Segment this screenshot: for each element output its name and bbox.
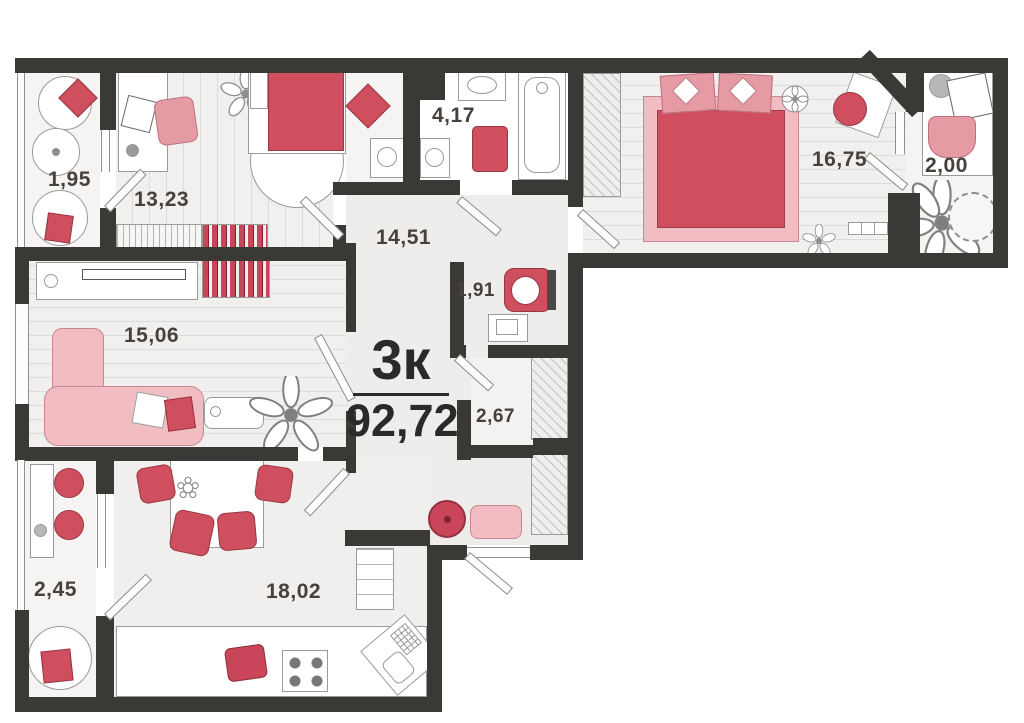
door-entrance xyxy=(464,552,513,595)
wall xyxy=(15,447,298,461)
toilet-bowl xyxy=(511,276,540,305)
wall xyxy=(512,180,568,195)
washer-drum xyxy=(425,148,444,167)
wall xyxy=(100,58,116,130)
unit-type-label: 3к xyxy=(346,332,456,388)
balcony-top-right-area-label: 2,00 xyxy=(925,154,968,178)
chair-cushion xyxy=(44,212,74,243)
bedroom-master-area-label: 16,75 xyxy=(812,148,867,172)
kitchen-area-label: 18,02 xyxy=(266,580,321,604)
wall xyxy=(457,445,533,458)
floor-plan: 1,95 13,23 4,17 14,51 16,75 2,00 1,91 15… xyxy=(0,0,1024,723)
toaster xyxy=(224,643,268,682)
unit-title: 3к 92,72 xyxy=(346,332,456,443)
desk-lamp-icon xyxy=(126,144,139,157)
bar-counter xyxy=(30,464,54,558)
bush-plant-icon xyxy=(948,192,998,242)
wall xyxy=(345,530,430,546)
plant-icon xyxy=(248,376,334,454)
sink-basin xyxy=(467,76,497,94)
wall xyxy=(533,438,568,455)
sofa-pillow xyxy=(131,391,168,428)
closet-floor xyxy=(471,358,533,445)
wc-area-label: 1,91 xyxy=(456,280,495,302)
window xyxy=(17,73,25,247)
wall xyxy=(442,545,467,560)
window xyxy=(15,304,29,404)
wall xyxy=(568,253,1008,268)
balcony-bottom-left-area-label: 2,45 xyxy=(34,578,77,602)
chair-cushion xyxy=(40,649,73,684)
wall xyxy=(568,58,583,207)
table-dot xyxy=(52,148,60,156)
shoe-bench xyxy=(470,505,522,539)
double-bed-mattress xyxy=(657,110,785,228)
window xyxy=(17,460,25,610)
ceiling-fan-icon xyxy=(780,84,810,114)
wall xyxy=(488,345,568,358)
speaker xyxy=(44,274,58,288)
bar-stool xyxy=(54,510,84,540)
wardrobe xyxy=(583,73,621,197)
bathtub-drain xyxy=(536,82,548,94)
wardrobe xyxy=(531,350,568,440)
bar-stool xyxy=(54,468,84,498)
dining-chair xyxy=(168,508,216,557)
pouf-button xyxy=(444,516,451,523)
entrance-threshold xyxy=(467,547,530,558)
desk-chair xyxy=(153,95,199,146)
wall xyxy=(96,616,114,712)
bathroom-area-label: 4,17 xyxy=(432,104,475,128)
wall xyxy=(100,208,116,247)
small-stool xyxy=(34,524,47,537)
dining-chair xyxy=(135,463,177,505)
bedroom-chair xyxy=(833,92,867,126)
bed-blanket xyxy=(268,71,344,151)
wall xyxy=(403,58,420,195)
wall xyxy=(15,247,333,261)
bath-mat xyxy=(472,126,508,172)
sink-bowl xyxy=(380,649,416,686)
book-rack xyxy=(202,260,270,298)
wardrobe xyxy=(531,453,568,535)
wc-sink-basin xyxy=(496,319,518,335)
wall xyxy=(993,58,1008,268)
fridge xyxy=(356,548,394,610)
closet-area-label: 2,67 xyxy=(476,406,515,428)
dining-chair xyxy=(216,510,257,551)
window xyxy=(97,494,106,568)
wall xyxy=(403,180,460,195)
flower-decor-icon xyxy=(176,476,200,500)
wall xyxy=(568,253,583,560)
wall xyxy=(888,193,920,268)
living-room-area-label: 15,06 xyxy=(124,324,179,348)
wall xyxy=(346,243,356,332)
sofa-cushion xyxy=(164,396,196,432)
stove xyxy=(282,650,328,692)
hallway-area-label: 14,51 xyxy=(376,226,431,250)
balcony-top-left-area-label: 1,95 xyxy=(48,168,91,192)
dining-chair xyxy=(254,464,295,505)
table-decor xyxy=(210,406,221,417)
wall xyxy=(420,58,445,100)
washer-drum xyxy=(377,147,397,167)
wall xyxy=(333,182,403,195)
unit-total-area: 92,72 xyxy=(346,398,456,443)
bedroom-small-area-label: 13,23 xyxy=(134,188,189,212)
office-chair xyxy=(928,116,976,158)
bed-pillow xyxy=(250,71,268,109)
tv xyxy=(82,269,186,280)
window xyxy=(101,130,110,172)
laptop-icon xyxy=(946,72,994,121)
tv-console xyxy=(36,262,198,300)
toilet-tank xyxy=(547,270,556,310)
window xyxy=(895,112,905,154)
wall xyxy=(323,447,356,461)
wall xyxy=(15,697,442,712)
wall xyxy=(96,460,114,494)
wall xyxy=(427,545,442,712)
